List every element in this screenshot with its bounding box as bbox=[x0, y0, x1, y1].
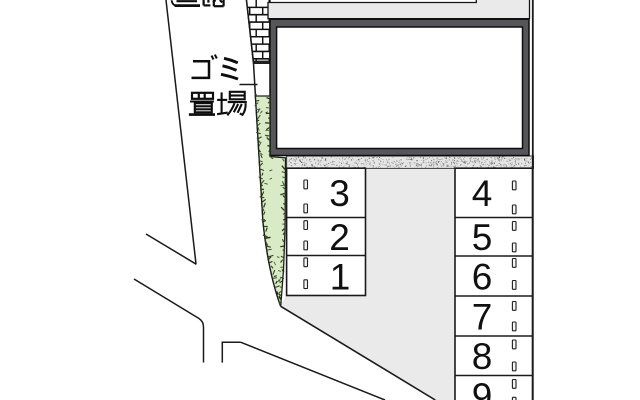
svg-text:7: 7 bbox=[472, 296, 493, 337]
svg-text:9: 9 bbox=[472, 376, 493, 400]
svg-text:8: 8 bbox=[472, 336, 493, 377]
svg-text:6: 6 bbox=[472, 257, 493, 298]
svg-text:5: 5 bbox=[472, 217, 493, 258]
svg-text:2: 2 bbox=[329, 217, 350, 258]
svg-text:4: 4 bbox=[472, 173, 493, 214]
svg-text:3: 3 bbox=[329, 173, 350, 214]
svg-text:1: 1 bbox=[330, 256, 351, 297]
